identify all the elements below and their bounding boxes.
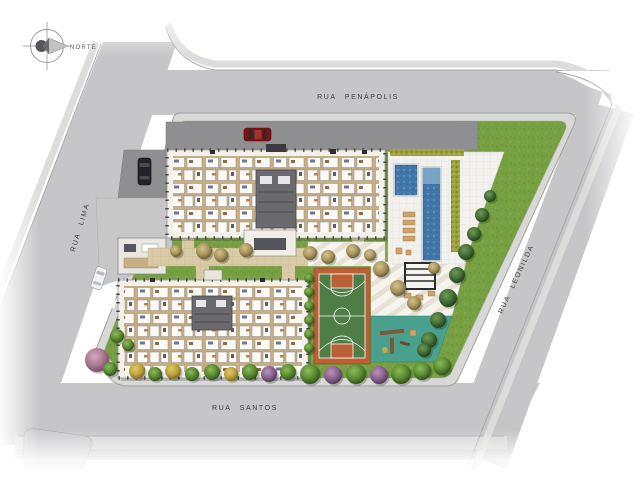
- tree: [304, 301, 314, 311]
- tree: [165, 363, 181, 379]
- hedge-top: [390, 149, 464, 156]
- tree: [390, 280, 406, 296]
- tree: [280, 364, 296, 380]
- tree: [214, 248, 228, 262]
- tree: [467, 227, 481, 241]
- tree: [148, 367, 162, 381]
- tree: [475, 208, 489, 222]
- lap-pool: [422, 167, 442, 262]
- tree: [300, 364, 320, 384]
- tree: [204, 364, 220, 380]
- tree: [110, 329, 124, 343]
- street-label-santos: RUA SANTOS: [212, 405, 278, 412]
- tree: [185, 367, 199, 381]
- building-a: [167, 144, 385, 238]
- tree: [370, 366, 388, 384]
- tree: [303, 246, 317, 260]
- tree: [261, 366, 277, 382]
- tree: [433, 357, 451, 375]
- tree: [428, 262, 440, 274]
- tree: [413, 362, 431, 380]
- tree: [373, 261, 389, 277]
- hedge-right: [451, 160, 460, 252]
- building-b-canopy: [204, 270, 222, 280]
- tree: [196, 243, 212, 259]
- tree: [324, 366, 342, 384]
- tree: [304, 315, 314, 325]
- red-car: [244, 128, 271, 141]
- tree: [458, 244, 474, 260]
- building-b: [118, 270, 308, 378]
- top-driveway: [166, 122, 478, 150]
- site-plan-drawing: RUA PENÁPOLIS RUA LIMA RUA SANTOS RUA LE…: [0, 0, 640, 485]
- north-label: NORTE: [70, 45, 97, 51]
- site-plan-page: RUA PENÁPOLIS RUA LIMA RUA SANTOS RUA LE…: [0, 0, 640, 485]
- tree: [407, 296, 421, 310]
- tree: [304, 273, 314, 283]
- tree: [170, 245, 182, 257]
- street-rua-penapolis: [150, 70, 610, 115]
- crosswalk: [97, 295, 116, 309]
- tree: [242, 364, 258, 380]
- small-pool: [394, 164, 419, 197]
- tree: [122, 339, 134, 351]
- tree: [346, 244, 360, 258]
- walkway-stub: [282, 266, 295, 280]
- tree: [484, 190, 496, 202]
- tree: [224, 367, 238, 381]
- basketball-court: [314, 268, 370, 364]
- tree: [304, 329, 314, 339]
- tree: [304, 287, 314, 297]
- tree: [391, 364, 411, 384]
- tree: [449, 267, 465, 283]
- building-a-canopy: [266, 144, 286, 152]
- tree: [321, 250, 335, 264]
- tree: [430, 312, 446, 328]
- tree: [103, 362, 117, 376]
- tree: [439, 289, 457, 307]
- tree: [346, 364, 366, 384]
- tree: [129, 363, 145, 379]
- street-label-penapolis: RUA PENÁPOLIS: [317, 92, 399, 101]
- black-car: [138, 158, 151, 185]
- tree: [304, 343, 314, 353]
- tree: [239, 243, 253, 257]
- tree: [417, 343, 431, 357]
- tree: [364, 249, 376, 261]
